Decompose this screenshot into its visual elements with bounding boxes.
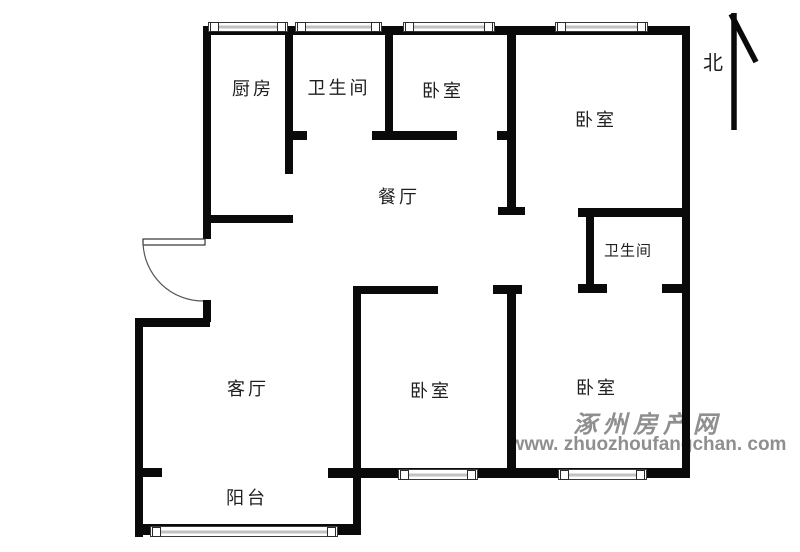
window (555, 22, 648, 32)
wall (203, 215, 293, 223)
window (208, 22, 288, 32)
wall (578, 284, 607, 293)
wall (385, 26, 393, 139)
room-label-bathroom-right: 卫生间 (604, 240, 652, 261)
window (403, 22, 495, 32)
wall (372, 131, 457, 140)
window (398, 469, 478, 480)
wall (682, 26, 690, 478)
wall (353, 286, 438, 294)
room-label-kitchen: 厨房 (232, 75, 274, 101)
wall (507, 26, 516, 215)
window (558, 469, 647, 480)
room-label-bedroom-top-middle: 卧室 (422, 77, 464, 103)
room-label-bathroom-top: 卫生间 (308, 74, 371, 100)
floor-plan: 北 厨房 卫生间 卧室 卧室 餐厅 卫生间 客厅 卧室 卧室 阳台 涿州房产网 … (0, 0, 800, 552)
wall (498, 207, 525, 215)
watermark-site-url: www. zhuozhoufangchan. com (510, 434, 787, 456)
wall (353, 286, 361, 535)
wall (578, 208, 690, 217)
room-label-balcony: 阳台 (226, 484, 268, 510)
wall (507, 293, 516, 473)
north-label: 北 (703, 47, 723, 76)
room-label-bedroom-top-right: 卧室 (575, 106, 617, 132)
wall (135, 318, 143, 537)
room-label-bedroom-bottom-right: 卧室 (576, 374, 618, 400)
room-label-bedroom-bottom-middle: 卧室 (410, 377, 452, 403)
wall (203, 26, 211, 239)
wall (137, 468, 162, 477)
room-label-living: 客厅 (227, 375, 269, 401)
wall (586, 208, 594, 286)
wall (285, 131, 307, 140)
wall (285, 26, 293, 174)
wall (137, 318, 210, 327)
entry-door-swing-icon (135, 235, 215, 310)
room-label-dining: 餐厅 (378, 183, 420, 209)
window (150, 526, 338, 537)
window (295, 22, 382, 32)
wall (662, 284, 690, 293)
